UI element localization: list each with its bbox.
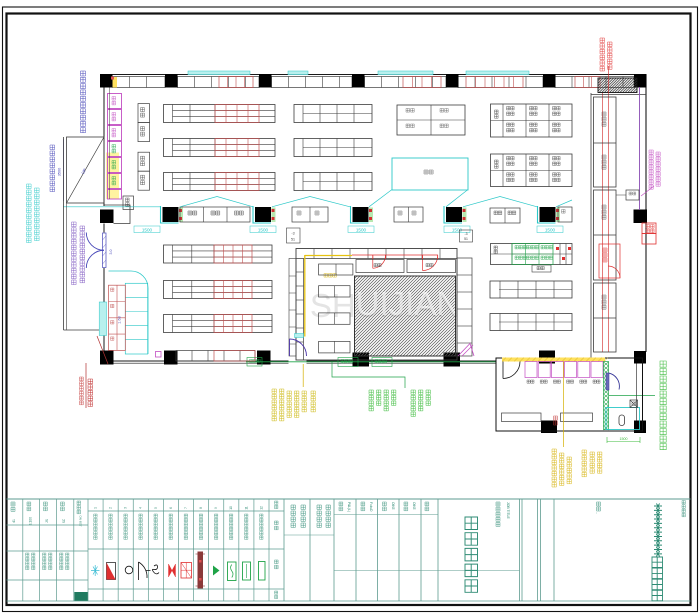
svg-text:3.0: 3.0 bbox=[109, 250, 113, 255]
svg-text:5: 5 bbox=[154, 507, 158, 509]
svg-text:1: 1 bbox=[94, 507, 98, 509]
svg-text:6: 6 bbox=[169, 507, 173, 509]
svg-text:1:100: 1:100 bbox=[29, 517, 33, 525]
svg-text:1500: 1500 bbox=[620, 437, 628, 441]
svg-text:FukuD: FukuD bbox=[369, 502, 373, 512]
svg-text:51: 51 bbox=[464, 237, 468, 241]
svg-text:9: 9 bbox=[214, 507, 218, 509]
svg-text:OIKE: OIKE bbox=[391, 502, 395, 510]
svg-text:JOB TITLE: JOB TITLE bbox=[506, 502, 510, 519]
svg-text:SC: SC bbox=[62, 518, 66, 523]
svg-text:OIKE: OIKE bbox=[412, 502, 416, 510]
svg-text:1.63: 1.63 bbox=[118, 316, 122, 323]
svg-text:1500: 1500 bbox=[545, 228, 556, 233]
svg-text:51: 51 bbox=[291, 238, 295, 242]
svg-text:JOB NO: JOB NO bbox=[79, 515, 83, 527]
svg-text:P&L(L): P&L(L) bbox=[347, 502, 351, 512]
svg-text:3: 3 bbox=[124, 507, 128, 509]
svg-text:JS: JS bbox=[45, 519, 49, 523]
svg-text:1500: 1500 bbox=[258, 228, 269, 233]
svg-text:4: 4 bbox=[139, 507, 143, 509]
svg-text:8: 8 bbox=[199, 507, 203, 509]
svg-text:1500: 1500 bbox=[356, 228, 367, 233]
svg-text:3500: 3500 bbox=[58, 168, 62, 176]
svg-text:-3: -3 bbox=[291, 232, 294, 236]
svg-text:12: 12 bbox=[259, 506, 263, 510]
svg-text:7: 7 bbox=[184, 507, 188, 509]
svg-text::: : bbox=[596, 510, 597, 515]
svg-text:1500: 1500 bbox=[142, 228, 153, 233]
svg-text:41: 41 bbox=[12, 519, 16, 523]
svg-text:11: 11 bbox=[244, 506, 248, 510]
svg-text:-3: -3 bbox=[464, 232, 467, 236]
svg-text:10: 10 bbox=[229, 506, 233, 510]
svg-text:2: 2 bbox=[109, 507, 113, 509]
